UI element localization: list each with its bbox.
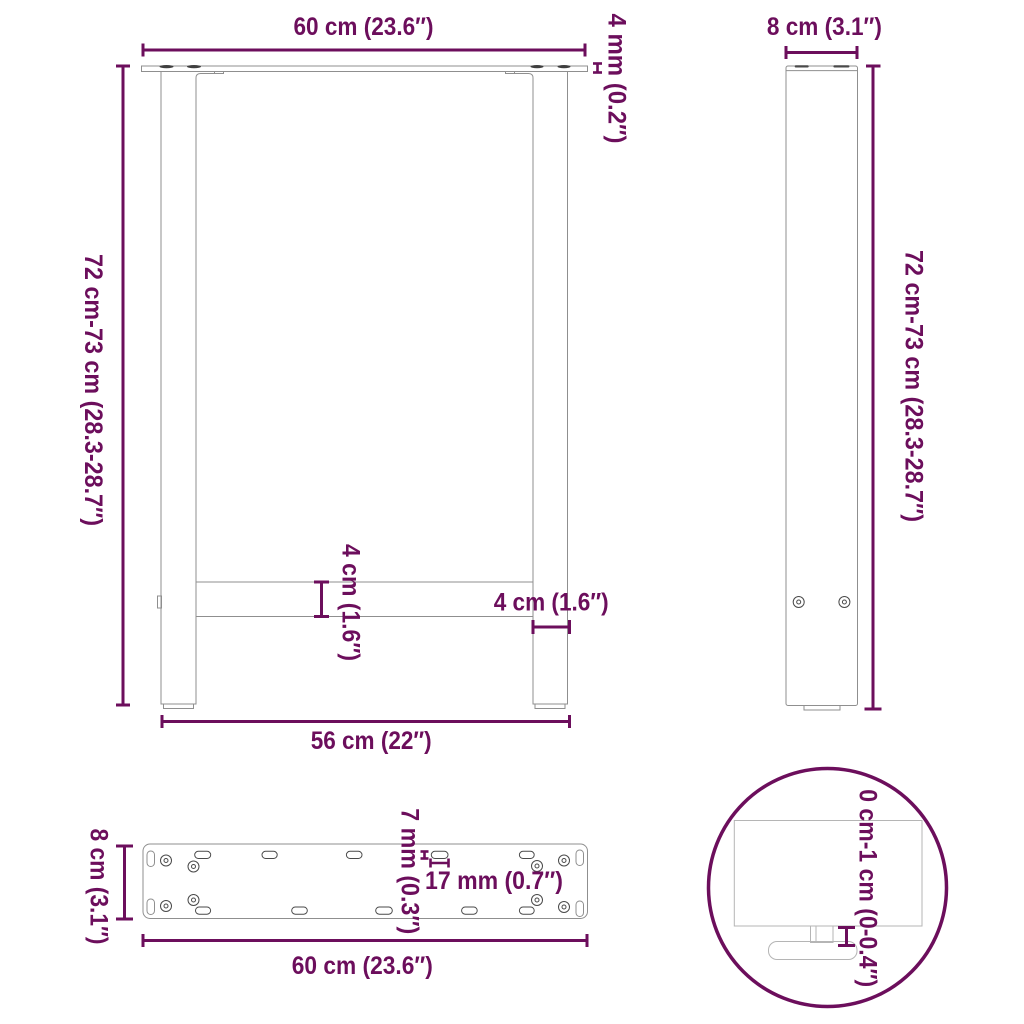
svg-text:56 cm (22″): 56 cm (22″)	[311, 727, 432, 755]
svg-text:72 cm-73 cm (28.3-28.7″): 72 cm-73 cm (28.3-28.7″)	[79, 254, 107, 526]
svg-text:4 mm (0.2″): 4 mm (0.2″)	[603, 14, 631, 144]
svg-text:17 mm (0.7″): 17 mm (0.7″)	[425, 867, 563, 895]
svg-text:4 cm (1.6″): 4 cm (1.6″)	[494, 588, 609, 616]
svg-text:8 cm (3.1″): 8 cm (3.1″)	[85, 829, 113, 945]
svg-text:60 cm (23.6″): 60 cm (23.6″)	[294, 13, 434, 41]
svg-text:0 cm-1 cm (0-0.4″): 0 cm-1 cm (0-0.4″)	[854, 789, 882, 987]
svg-text:8 cm (3.1″): 8 cm (3.1″)	[767, 13, 882, 41]
svg-text:4 cm (1.6″): 4 cm (1.6″)	[337, 544, 365, 661]
svg-text:60 cm (23.6″): 60 cm (23.6″)	[292, 952, 433, 980]
svg-text:72 cm-73 cm (28.3-28.7″): 72 cm-73 cm (28.3-28.7″)	[900, 250, 928, 522]
svg-text:7 mm (0.3″): 7 mm (0.3″)	[396, 808, 424, 934]
